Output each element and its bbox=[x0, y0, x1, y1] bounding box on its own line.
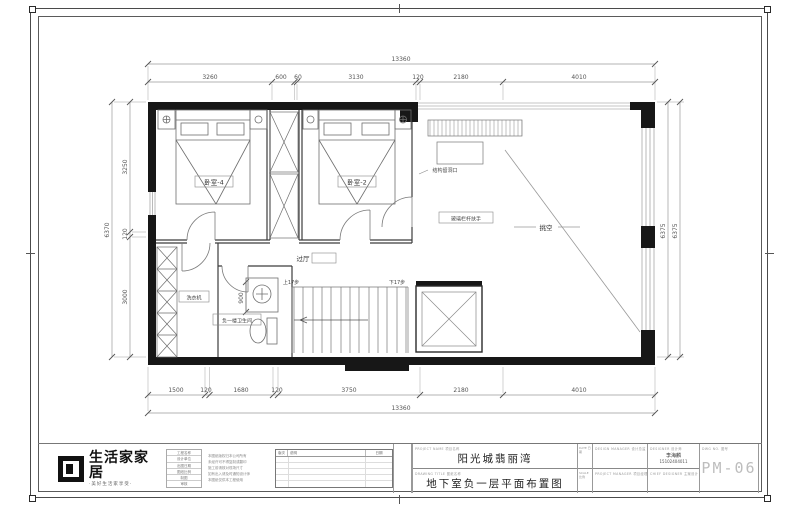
info-table: 工程名称 设计单位 出图日期 图纸比例 制图 审核 bbox=[166, 449, 202, 488]
manager-cell: DESIGN MANAGER 设计总监 PROJECT MANAGER 项目经理 bbox=[592, 444, 647, 493]
brand-logo-icon bbox=[58, 456, 84, 482]
project-name-value: 阳光城翡丽湾 bbox=[413, 451, 577, 466]
dim-top-overall: 13360 bbox=[391, 56, 410, 63]
svg-text:3250: 3250 bbox=[122, 159, 129, 174]
svg-text:4010: 4010 bbox=[571, 387, 586, 394]
drawing-sheet: 13360 3260 600 60 3130 120 2180 4010 150… bbox=[0, 0, 800, 508]
elevator-shaft bbox=[416, 286, 482, 352]
spare-cell bbox=[393, 444, 412, 493]
svg-text:3750: 3750 bbox=[341, 387, 356, 394]
project-cell: PROJECT NAME 项目名称 阳光城翡丽湾 DRAWING TITLE 图… bbox=[412, 444, 577, 493]
corner-mark bbox=[29, 495, 36, 502]
project-name-row: PROJECT NAME 项目名称 阳光城翡丽湾 bbox=[413, 444, 577, 469]
cabinet-top-right bbox=[428, 120, 522, 164]
title-block: 生活家家居 ·美好生活家享受· 工程名称 设计单位 出图日期 图纸比例 制图 审… bbox=[38, 443, 762, 492]
brand-logo: 生活家家居 ·美好生活家享受· bbox=[58, 451, 160, 487]
label-washer: 洗衣机 bbox=[186, 295, 201, 302]
scale-label: SCALE 比例 bbox=[578, 469, 592, 494]
revision-col-version: 版次 bbox=[276, 450, 288, 456]
revision-row bbox=[276, 481, 392, 487]
floor-plan: 13360 3260 600 60 3130 120 2180 4010 150… bbox=[0, 0, 800, 438]
date-scale-cell: DATE 日期 SCALE 比例 bbox=[577, 444, 592, 493]
label-bath: 负一楼卫生间 bbox=[222, 318, 252, 325]
svg-text:4010: 4010 bbox=[571, 74, 586, 81]
label-void: 挑空 bbox=[540, 223, 554, 232]
void-diagonal bbox=[505, 150, 640, 332]
wardrobe bbox=[270, 112, 298, 238]
svg-text:120: 120 bbox=[271, 387, 283, 394]
svg-text:2180: 2180 bbox=[453, 387, 468, 394]
designer-cell: DESIGNER 设计师 李海麟 15102404011 CHIEF DESIG… bbox=[647, 444, 699, 493]
svg-text:120: 120 bbox=[200, 387, 212, 394]
staircase bbox=[292, 287, 408, 353]
date-label: DATE 日期 bbox=[578, 444, 592, 469]
annotations: 结构留洞口 玻璃栏杆扶手 上17步 下17步 bbox=[283, 167, 493, 286]
revision-col-desc: 说明 bbox=[288, 450, 366, 456]
disclaimer-line: 本图纸仅供本工程使用 bbox=[208, 477, 270, 483]
bed-bedroom4 bbox=[158, 110, 267, 204]
svg-text:120: 120 bbox=[412, 74, 424, 81]
svg-text:60: 60 bbox=[294, 74, 302, 81]
chief-designer-label: CHIEF DESIGNER 主案设计 bbox=[650, 471, 698, 476]
brand-name: 生活家家居 bbox=[89, 451, 160, 481]
walls bbox=[148, 102, 655, 371]
label-bedroom2: 卧室-2 bbox=[347, 178, 366, 187]
toilet-icon bbox=[250, 318, 277, 344]
svg-text:2180: 2180 bbox=[453, 74, 468, 81]
drawing-number-value: PM-06 bbox=[700, 459, 758, 477]
svg-text:1500: 1500 bbox=[168, 387, 183, 394]
project-manager-label: PROJECT MANAGER 项目经理 bbox=[595, 471, 648, 476]
note-opening: 结构留洞口 bbox=[432, 167, 457, 174]
note-stair-up: 上17步 bbox=[283, 279, 299, 286]
info-row: 审核 bbox=[167, 481, 201, 487]
bed-bedroom2 bbox=[303, 110, 411, 204]
drawing-number-label: DWG NO. 图号 bbox=[702, 446, 728, 451]
dim-left-overall: 6370 bbox=[104, 222, 111, 237]
drawing-title-value: 地下室负一层平面布置图 bbox=[413, 476, 577, 491]
edge-tick bbox=[399, 495, 400, 504]
svg-text:3000: 3000 bbox=[122, 289, 129, 304]
revision-col-date: 日期 bbox=[366, 450, 392, 456]
design-manager-label: DESIGN MANAGER 设计总监 bbox=[595, 446, 646, 451]
designer-phone: 15102404011 bbox=[648, 459, 699, 464]
svg-text:6375: 6375 bbox=[672, 223, 679, 238]
partitions bbox=[156, 110, 412, 357]
label-bedroom4: 卧室-4 bbox=[204, 178, 223, 187]
svg-text:3130: 3130 bbox=[348, 74, 363, 81]
svg-text:3260: 3260 bbox=[202, 74, 217, 81]
label-hall: 过厅 bbox=[297, 254, 311, 263]
door-swings bbox=[182, 197, 412, 292]
disclaimer-text: 本图纸版权归本公司所有 未经许可不得复制或翻印 施工前请核对现场尺寸 如有出入请… bbox=[208, 453, 270, 483]
revision-table: 版次 说明 日期 bbox=[275, 449, 393, 488]
note-stair-down: 下17步 bbox=[389, 280, 405, 286]
drawing-number-cell: DWG NO. 图号 PM-06 bbox=[699, 444, 759, 493]
svg-text:120: 120 bbox=[122, 228, 129, 240]
storage-closet bbox=[157, 247, 177, 357]
svg-text:6375: 6375 bbox=[660, 223, 667, 238]
brand-slogan: ·美好生活家享受· bbox=[89, 481, 160, 487]
designer-name: 李海麟 bbox=[648, 452, 699, 459]
designer-label: DESIGNER 设计师 bbox=[650, 446, 682, 451]
basin-icon bbox=[246, 278, 278, 312]
svg-text:600: 600 bbox=[275, 74, 287, 81]
dim-bottom-overall: 13360 bbox=[391, 405, 410, 412]
drawing-title-row: DRAWING TITLE 图纸名称 地下室负一层平面布置图 bbox=[413, 469, 577, 494]
svg-text:1680: 1680 bbox=[233, 387, 248, 394]
dim-bath-width: 900 bbox=[238, 292, 245, 304]
corner-mark bbox=[764, 495, 771, 502]
note-railing: 玻璃栏杆扶手 bbox=[451, 216, 481, 223]
